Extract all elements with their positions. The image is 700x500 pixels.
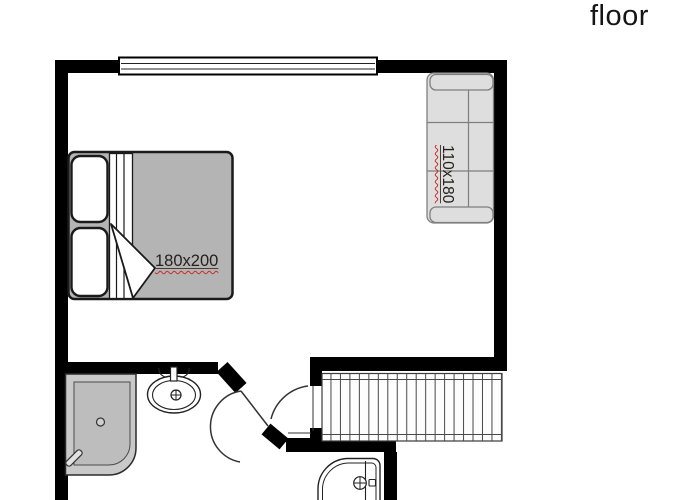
shower-drain-icon [97, 418, 105, 426]
window[interactable] [119, 58, 377, 75]
toilet-knob [369, 480, 376, 487]
wall-segment [68, 362, 218, 374]
toilet[interactable] [318, 459, 380, 500]
door-swing-arc [271, 386, 308, 419]
bed-size-text: 180x200 [155, 252, 218, 270]
floor-plan-drawing [0, 0, 700, 500]
wall-segment [384, 452, 397, 500]
floor-title: floor [590, 0, 695, 33]
sofa-size-text: 110x180 [439, 145, 456, 203]
door-swing-arc [210, 391, 241, 462]
floor-plan-canvas: 180x200 110x180 floor [0, 0, 700, 500]
wall-segment [310, 371, 322, 386]
pillow [72, 228, 108, 296]
sofa-size-label: 110x180 [434, 145, 456, 213]
pillow [72, 156, 108, 222]
bed[interactable] [69, 152, 233, 299]
stairs[interactable] [322, 374, 502, 442]
wall-segment [310, 357, 507, 371]
sofa-armrest [430, 75, 493, 91]
shower[interactable] [65, 374, 136, 475]
sink-faucet-icon [171, 367, 178, 381]
bed-size-label: 180x200 [155, 252, 218, 272]
bathroom-door[interactable] [210, 367, 268, 462]
door-leaf [266, 429, 284, 444]
entry-door[interactable] [266, 386, 313, 444]
door-leaf [222, 367, 241, 388]
door-open-line [241, 391, 268, 426]
wall-segment [494, 60, 507, 371]
